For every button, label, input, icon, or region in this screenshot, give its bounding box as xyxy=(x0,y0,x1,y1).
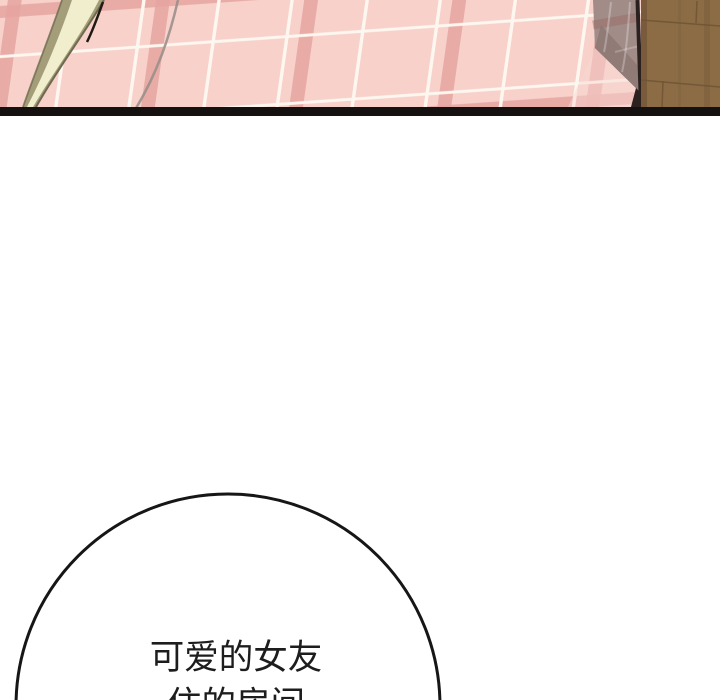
wood-streak2 xyxy=(678,0,681,110)
comic-panel-illustration: 可爱的女友 住的房间 xyxy=(0,0,720,700)
speech-text-line1: 可爱的女友 xyxy=(150,639,323,677)
wood-streak1 xyxy=(704,0,710,110)
speech-text-line2: 住的房间 xyxy=(167,686,305,700)
wood-plank-joint2 xyxy=(696,1,697,23)
wood-floor-edge xyxy=(641,0,647,110)
wood-plank-joint1 xyxy=(662,81,663,108)
panel-border xyxy=(0,107,720,116)
comic-page: 可爱的女友 住的房间 xyxy=(0,0,720,700)
